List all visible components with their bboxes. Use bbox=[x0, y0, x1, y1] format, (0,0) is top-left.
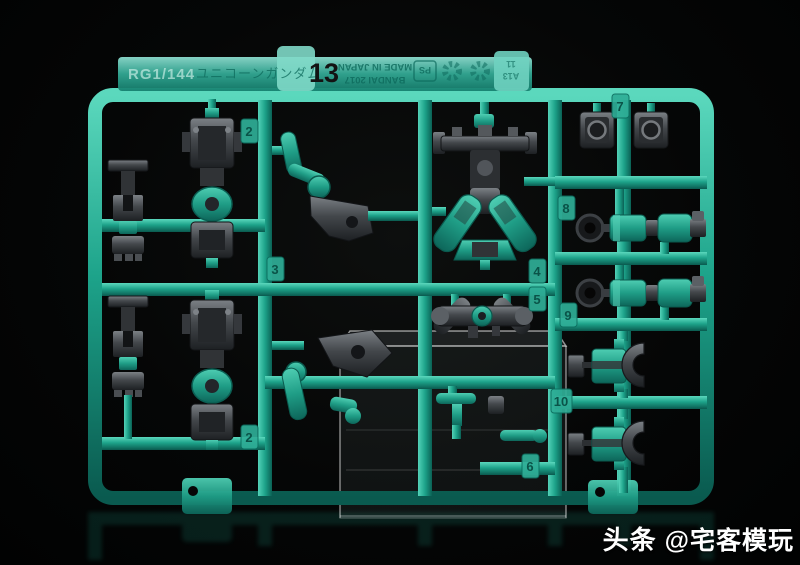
arm-link-part bbox=[272, 131, 418, 241]
watermark-handle: @宅客模玩 bbox=[665, 521, 794, 557]
watermark: 头条 @宅客模玩 bbox=[603, 520, 794, 557]
hanger-tab bbox=[588, 480, 638, 514]
part-number-tag: 6 bbox=[522, 454, 539, 478]
runner-bar-horizontal bbox=[102, 283, 555, 296]
runner-sprue-photo: RG1/144 ユニコーンガンダム 13 BANDAI 2017 MADE IN… bbox=[0, 0, 800, 565]
watermark-brand: 头条 bbox=[603, 520, 657, 557]
inner-frame-part bbox=[182, 99, 242, 268]
svg-text:7: 7 bbox=[616, 99, 623, 114]
kit-name-text: ユニコーンガンダム bbox=[196, 66, 321, 81]
part-number-tag: 9 bbox=[560, 303, 577, 327]
part-number-tag: 10 bbox=[551, 389, 572, 413]
runner-number: 13 bbox=[309, 58, 339, 88]
eye-square-part bbox=[634, 103, 668, 148]
runner-bar-vertical bbox=[548, 100, 562, 496]
svg-text:MADE IN JAPAN: MADE IN JAPAN bbox=[338, 61, 412, 72]
gray-joint-part bbox=[108, 296, 148, 439]
svg-text:3: 3 bbox=[271, 262, 278, 277]
gray-joint-part bbox=[108, 160, 148, 261]
runner-bar-horizontal bbox=[555, 318, 707, 331]
runner-bar-vertical bbox=[258, 100, 272, 496]
part-number-tag: 2 bbox=[241, 119, 258, 143]
part-number-tag: 8 bbox=[558, 196, 575, 220]
clamp-part bbox=[568, 331, 644, 398]
part-number-tag: 4 bbox=[529, 259, 546, 283]
runner-bar-horizontal bbox=[555, 396, 707, 409]
part-number-tag: 3 bbox=[267, 257, 284, 281]
leg-frame-assembly bbox=[430, 102, 555, 270]
svg-text:2: 2 bbox=[245, 124, 252, 139]
hanger-tab bbox=[182, 478, 232, 514]
svg-text:PS: PS bbox=[419, 65, 431, 75]
label-strip: RG1/144 ユニコーンガンダム 13 BANDAI 2017 MADE IN… bbox=[118, 46, 532, 91]
runner-bar-horizontal bbox=[555, 176, 707, 189]
part-number-tag: 2 bbox=[241, 425, 258, 449]
runner-bar-horizontal bbox=[265, 376, 555, 389]
piston-part bbox=[577, 265, 706, 320]
cavity-tab bbox=[494, 51, 529, 91]
part-number-tag: 5 bbox=[529, 287, 546, 311]
piston-part bbox=[577, 189, 706, 254]
photo-canvas: RG1/144 ユニコーンガンダム 13 BANDAI 2017 MADE IN… bbox=[0, 0, 800, 565]
svg-text:A13: A13 bbox=[503, 71, 520, 81]
runner-bar-horizontal bbox=[555, 252, 707, 265]
svg-text:9: 9 bbox=[564, 308, 571, 323]
inner-frame-part bbox=[182, 290, 242, 450]
svg-text:5: 5 bbox=[533, 292, 540, 307]
runner-bar-vertical bbox=[418, 100, 432, 496]
runner-bar-horizontal bbox=[480, 462, 555, 475]
svg-text:4: 4 bbox=[533, 264, 541, 279]
svg-text:10: 10 bbox=[554, 394, 568, 409]
part-number-tag: 7 bbox=[612, 94, 629, 118]
eye-square-part bbox=[580, 103, 614, 148]
svg-text:6: 6 bbox=[526, 459, 533, 474]
svg-text:BANDAI 2017: BANDAI 2017 bbox=[345, 74, 406, 85]
svg-text:8: 8 bbox=[562, 201, 569, 216]
scale-text: RG1/144 bbox=[128, 66, 195, 83]
svg-text:2: 2 bbox=[245, 430, 252, 445]
svg-text:11: 11 bbox=[506, 59, 516, 69]
